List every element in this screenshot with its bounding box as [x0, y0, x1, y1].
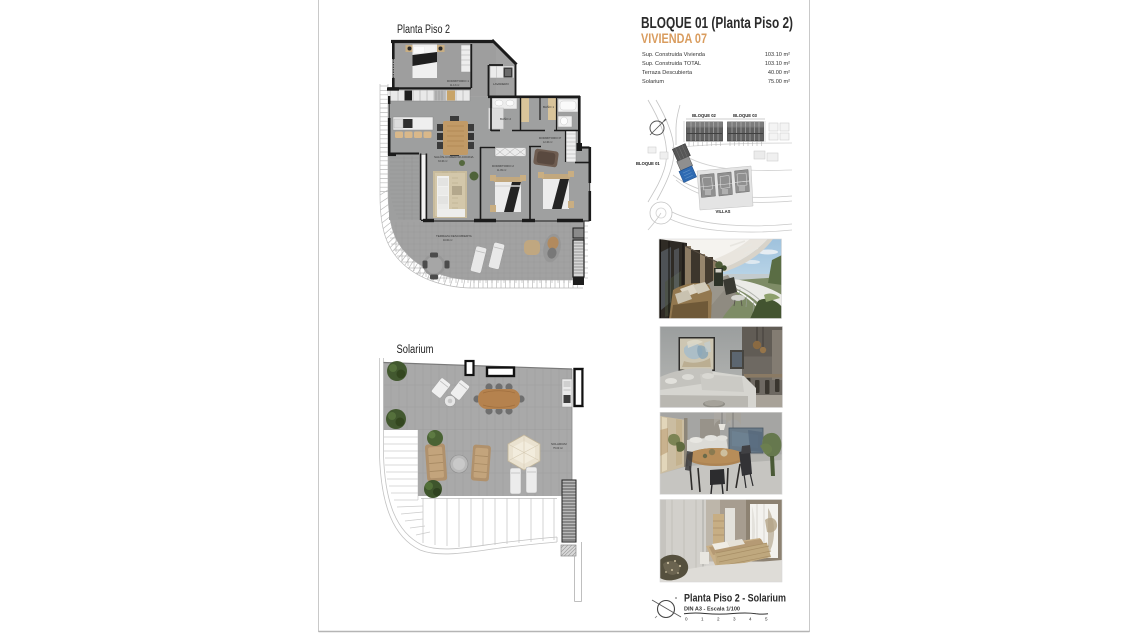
svg-text:SALÓN-COMEDOR-COCINA: SALÓN-COMEDOR-COCINA: [434, 154, 474, 159]
svg-text:33.46 m²: 33.46 m²: [438, 160, 448, 163]
svg-text:BLOQUE 02: BLOQUE 02: [692, 113, 716, 118]
svg-text:75.00 m²: 75.00 m²: [553, 447, 563, 450]
svg-text:Terraza Descubierta: Terraza Descubierta: [642, 70, 693, 76]
svg-text:1: 1: [701, 617, 704, 622]
svg-text:Solarium: Solarium: [642, 79, 664, 85]
svg-text:TERRAZA DESCUBIERTA: TERRAZA DESCUBIERTA: [436, 234, 472, 238]
svg-text:3: 3: [733, 617, 736, 622]
svg-text:Sup. Construida TOTAL: Sup. Construida TOTAL: [642, 61, 701, 67]
svg-text:Planta Piso 2: Planta Piso 2: [397, 24, 450, 36]
svg-text:BLOQUE 01: BLOQUE 01: [636, 161, 660, 166]
svg-text:BAÑO 2: BAÑO 2: [500, 116, 511, 121]
svg-text:75.00 m²: 75.00 m²: [768, 79, 790, 85]
svg-text:Sup. Construida Vivienda: Sup. Construida Vivienda: [642, 52, 706, 58]
svg-text:5: 5: [765, 617, 768, 622]
svg-text:40.00 m²: 40.00 m²: [443, 239, 453, 242]
svg-text:Planta Piso 2 - Solarium: Planta Piso 2 - Solarium: [684, 593, 786, 605]
svg-text:11.09 m²: 11.09 m²: [497, 169, 506, 172]
svg-text:BLOQUE 03: BLOQUE 03: [733, 113, 757, 118]
svg-text:LAVADERO: LAVADERO: [493, 82, 510, 86]
svg-text:VILLAS: VILLAS: [716, 209, 731, 214]
svg-text:2: 2: [717, 617, 720, 622]
svg-text:12.46 m²: 12.46 m²: [543, 141, 553, 144]
svg-text:40.00 m²: 40.00 m²: [768, 70, 790, 76]
svg-text:DORMITORIO P: DORMITORIO P: [539, 136, 561, 140]
svg-text:Solarium: Solarium: [397, 344, 434, 356]
svg-text:11.13 m²: 11.13 m²: [450, 84, 459, 87]
svg-text:0: 0: [685, 617, 688, 622]
svg-text:DORMITORIO 2: DORMITORIO 2: [492, 164, 514, 168]
svg-text:BAÑO 1: BAÑO 1: [543, 104, 554, 109]
svg-text:4: 4: [749, 617, 752, 622]
svg-text:DIN A3 - Escala 1/100: DIN A3 - Escala 1/100: [684, 607, 740, 613]
svg-text:DORMITORIO 1: DORMITORIO 1: [447, 79, 469, 83]
svg-text:103.10 m²: 103.10 m²: [765, 52, 790, 58]
svg-text:VIVIENDA 07: VIVIENDA 07: [641, 30, 707, 46]
svg-text:SOLARIUM: SOLARIUM: [551, 442, 567, 446]
svg-text:103.10 m²: 103.10 m²: [765, 61, 790, 67]
